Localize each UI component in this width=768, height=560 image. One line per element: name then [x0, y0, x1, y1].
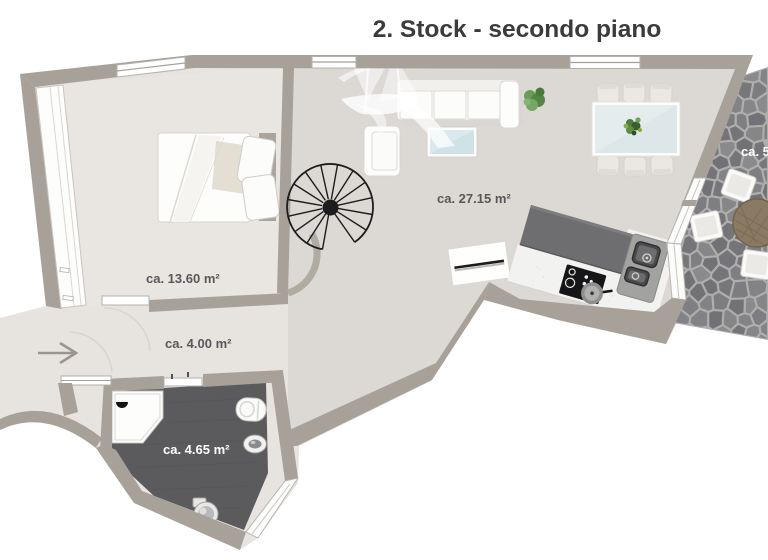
- svg-text:ca. 5.00 m²: ca. 5.00 m²: [741, 144, 768, 159]
- svg-text:ca. 4.65 m²: ca. 4.65 m²: [163, 442, 230, 457]
- svg-text:ca. 27.15 m²: ca. 27.15 m²: [437, 191, 511, 206]
- svg-text:ca. 13.60 m²: ca. 13.60 m²: [146, 271, 220, 286]
- svg-text:ca. 4.00 m²: ca. 4.00 m²: [165, 336, 232, 351]
- svg-text:2. Stock - secondo piano: 2. Stock - secondo piano: [373, 16, 662, 43]
